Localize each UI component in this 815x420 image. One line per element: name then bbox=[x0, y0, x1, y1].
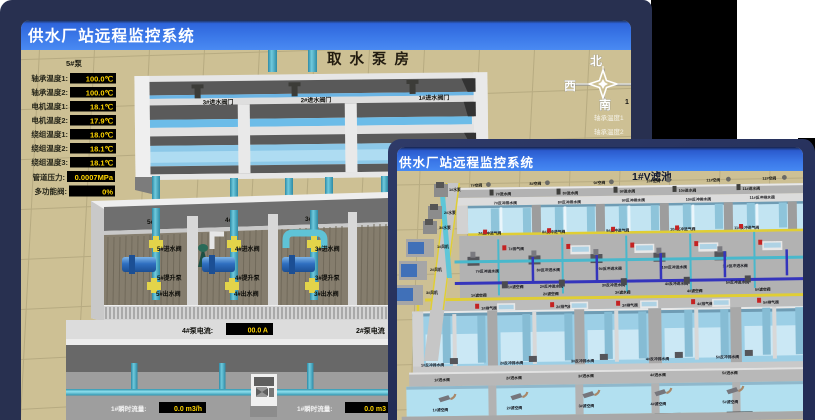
svg-text:轴承温度2:: 轴承温度2: bbox=[31, 87, 68, 97]
svg-text:5#反冲排水阀: 5#反冲排水阀 bbox=[716, 354, 739, 359]
svg-text:2#排气阀: 2#排气阀 bbox=[556, 304, 572, 309]
svg-text:3#水泵: 3#水泵 bbox=[439, 225, 451, 230]
svg-text:3#反冲排水阀: 3#反冲排水阀 bbox=[571, 358, 594, 363]
svg-text:3#排气阀: 3#排气阀 bbox=[622, 302, 638, 307]
svg-text:1#水泵: 1#水泵 bbox=[449, 187, 461, 192]
svg-text:2#水泵: 2#水泵 bbox=[444, 210, 456, 215]
svg-text:3#滤水阀: 3#滤水阀 bbox=[615, 290, 631, 295]
svg-text:2#反冲排水阀: 2#反冲排水阀 bbox=[500, 360, 523, 365]
svg-text:5#提升泵: 5#提升泵 bbox=[157, 274, 183, 282]
svg-text:西: 西 bbox=[564, 79, 576, 93]
svg-text:10#反冲进水阀: 10#反冲进水阀 bbox=[662, 264, 688, 269]
svg-text:10#反冲进气阀: 10#反冲进气阀 bbox=[670, 226, 696, 231]
svg-text:1#瞬时流量:: 1#瞬时流量: bbox=[297, 404, 332, 413]
svg-text:电机温度1:: 电机温度1: bbox=[31, 101, 68, 111]
svg-text:3#风机: 3#风机 bbox=[426, 290, 438, 295]
svg-text:11#反冲进气阀: 11#反冲进气阀 bbox=[734, 225, 759, 230]
svg-text:绕组温度1:: 绕组温度1: bbox=[31, 129, 68, 139]
svg-text:5#进水阀: 5#进水阀 bbox=[157, 245, 182, 253]
svg-text:0.0007MPa: 0.0007MPa bbox=[75, 173, 114, 182]
svg-text:10#空阀: 10#空阀 bbox=[646, 178, 660, 183]
svg-text:5#滤空阀: 5#滤空阀 bbox=[755, 287, 771, 292]
svg-text:4#滤空阀: 4#滤空阀 bbox=[687, 288, 703, 293]
svg-text:多功能阀:: 多功能阀: bbox=[35, 186, 68, 196]
svg-text:4#进水阀: 4#进水阀 bbox=[235, 245, 260, 253]
svg-text:8#反冲排水阀: 8#反冲排水阀 bbox=[558, 199, 581, 204]
svg-text:1#滤空阀: 1#滤空阀 bbox=[433, 407, 449, 412]
svg-text:8#反冲进水阀: 8#反冲进水阀 bbox=[537, 267, 560, 272]
svg-text:18.0℃: 18.0℃ bbox=[90, 131, 114, 140]
svg-text:3#滤空阀: 3#滤空阀 bbox=[579, 403, 595, 408]
svg-text:7#空阀: 7#空阀 bbox=[470, 183, 482, 188]
svg-text:1: 1 bbox=[625, 99, 629, 106]
svg-text:5#滤空阀: 5#滤空阀 bbox=[722, 399, 738, 404]
svg-text:轴承温度1: 轴承温度1 bbox=[594, 113, 624, 122]
svg-text:4#排气阀: 4#排气阀 bbox=[697, 301, 713, 306]
svg-text:5#出水阀: 5#出水阀 bbox=[156, 290, 181, 298]
svg-text:100.0℃: 100.0℃ bbox=[86, 75, 114, 84]
svg-text:3#出水阀: 3#出水阀 bbox=[314, 290, 339, 298]
svg-text:2#滤空阀: 2#滤空阀 bbox=[507, 405, 523, 410]
svg-text:3#进水阀: 3#进水阀 bbox=[578, 373, 594, 378]
svg-text:5#泵: 5#泵 bbox=[66, 59, 82, 68]
svg-text:1#进水阀: 1#进水阀 bbox=[434, 377, 450, 382]
svg-text:2#泵电流: 2#泵电流 bbox=[356, 326, 385, 335]
svg-text:0%: 0% bbox=[102, 188, 113, 197]
svg-text:北: 北 bbox=[590, 53, 602, 68]
svg-text:4#提升泵: 4#提升泵 bbox=[235, 274, 261, 282]
svg-text:1#滤空阀: 1#滤空阀 bbox=[508, 284, 524, 289]
svg-text:1#风机: 1#风机 bbox=[437, 244, 449, 249]
svg-text:7#排气阀: 7#排气阀 bbox=[508, 246, 524, 251]
svg-text:取水泵房: 取水泵房 bbox=[327, 50, 417, 68]
svg-text:7#反冲进气阀: 7#反冲进气阀 bbox=[478, 230, 501, 235]
svg-text:绕组温度3:: 绕组温度3: bbox=[31, 157, 68, 167]
svg-text:8#空阀: 8#空阀 bbox=[529, 181, 541, 186]
svg-text:11#反冲排水阀: 11#反冲排水阀 bbox=[750, 195, 775, 200]
svg-text:9#反冲进水阀: 9#反冲进水阀 bbox=[599, 266, 622, 271]
svg-text:11#进水阀: 11#进水阀 bbox=[742, 186, 760, 191]
svg-text:南: 南 bbox=[599, 97, 611, 112]
svg-text:0.0 m3/h: 0.0 m3/h bbox=[174, 406, 202, 413]
svg-text:5#排气阀: 5#排气阀 bbox=[763, 300, 779, 305]
svg-text:绕组温度2:: 绕组温度2: bbox=[31, 143, 68, 153]
svg-text:9#进水阀: 9#进水阀 bbox=[620, 188, 636, 193]
svg-text:18.1℃: 18.1℃ bbox=[90, 145, 114, 154]
svg-text:轴承温度1:: 轴承温度1: bbox=[31, 73, 68, 83]
svg-text:4#进水阀: 4#进水阀 bbox=[650, 372, 666, 377]
svg-text:7#进水阀: 7#进水阀 bbox=[496, 191, 512, 196]
svg-text:11#空阀: 11#空阀 bbox=[706, 177, 720, 182]
svg-text:1#瞬时流量:: 1#瞬时流量: bbox=[111, 404, 146, 413]
svg-text:4#反冲排水阀: 4#反冲排水阀 bbox=[646, 356, 669, 361]
svg-text:2#进水阀: 2#进水阀 bbox=[506, 375, 522, 380]
svg-text:8#进水阀: 8#进水阀 bbox=[563, 190, 579, 195]
svg-text:17.9℃: 17.9℃ bbox=[90, 117, 114, 126]
svg-text:0.0 m3: 0.0 m3 bbox=[364, 406, 386, 413]
svg-text:1#滤空阀: 1#滤空阀 bbox=[471, 293, 487, 298]
svg-text:9#空阀: 9#空阀 bbox=[593, 180, 605, 185]
svg-text:1#排气阀: 1#排气阀 bbox=[481, 305, 497, 310]
svg-text:10#反冲排水阀: 10#反冲排水阀 bbox=[686, 196, 712, 201]
svg-text:4#泵电流:: 4#泵电流: bbox=[182, 326, 213, 335]
svg-text:9#反冲排水阀: 9#反冲排水阀 bbox=[622, 197, 645, 202]
svg-text:4#滤空阀: 4#滤空阀 bbox=[650, 401, 666, 406]
svg-text:3#提升泵: 3#提升泵 bbox=[315, 274, 341, 282]
svg-text:10#进水阀: 10#进水阀 bbox=[679, 188, 697, 193]
svg-text:1#反冲排水阀: 1#反冲排水阀 bbox=[421, 362, 444, 367]
svg-text:9#反冲进气阀: 9#反冲进气阀 bbox=[606, 228, 629, 233]
svg-text:100.0℃: 100.0℃ bbox=[86, 89, 114, 98]
svg-text:5#进水阀: 5#进水阀 bbox=[722, 370, 738, 375]
svg-text:电机温度2:: 电机温度2: bbox=[31, 115, 68, 125]
svg-text:11#反冲进水阀: 11#反冲进水阀 bbox=[723, 263, 748, 268]
svg-text:3#进水阀: 3#进水阀 bbox=[315, 245, 340, 253]
svg-text:管道压力:: 管道压力: bbox=[33, 172, 66, 182]
svg-text:00.0 A: 00.0 A bbox=[248, 328, 268, 335]
svg-text:12#空阀: 12#空阀 bbox=[762, 176, 776, 181]
svg-text:7#反冲排水阀: 7#反冲排水阀 bbox=[494, 200, 517, 205]
svg-text:18.1℃: 18.1℃ bbox=[90, 103, 114, 112]
svg-text:8#反冲进气阀: 8#反冲进气阀 bbox=[542, 229, 565, 234]
svg-text:18.1℃: 18.1℃ bbox=[90, 159, 114, 168]
svg-text:2#滤空阀: 2#滤空阀 bbox=[543, 291, 559, 296]
svg-text:7#反冲进水阀: 7#反冲进水阀 bbox=[476, 268, 499, 273]
svg-text:2#风机: 2#风机 bbox=[430, 267, 442, 272]
svg-text:轴承温度2: 轴承温度2 bbox=[594, 127, 624, 136]
svg-text:4#出水阀: 4#出水阀 bbox=[234, 290, 259, 298]
